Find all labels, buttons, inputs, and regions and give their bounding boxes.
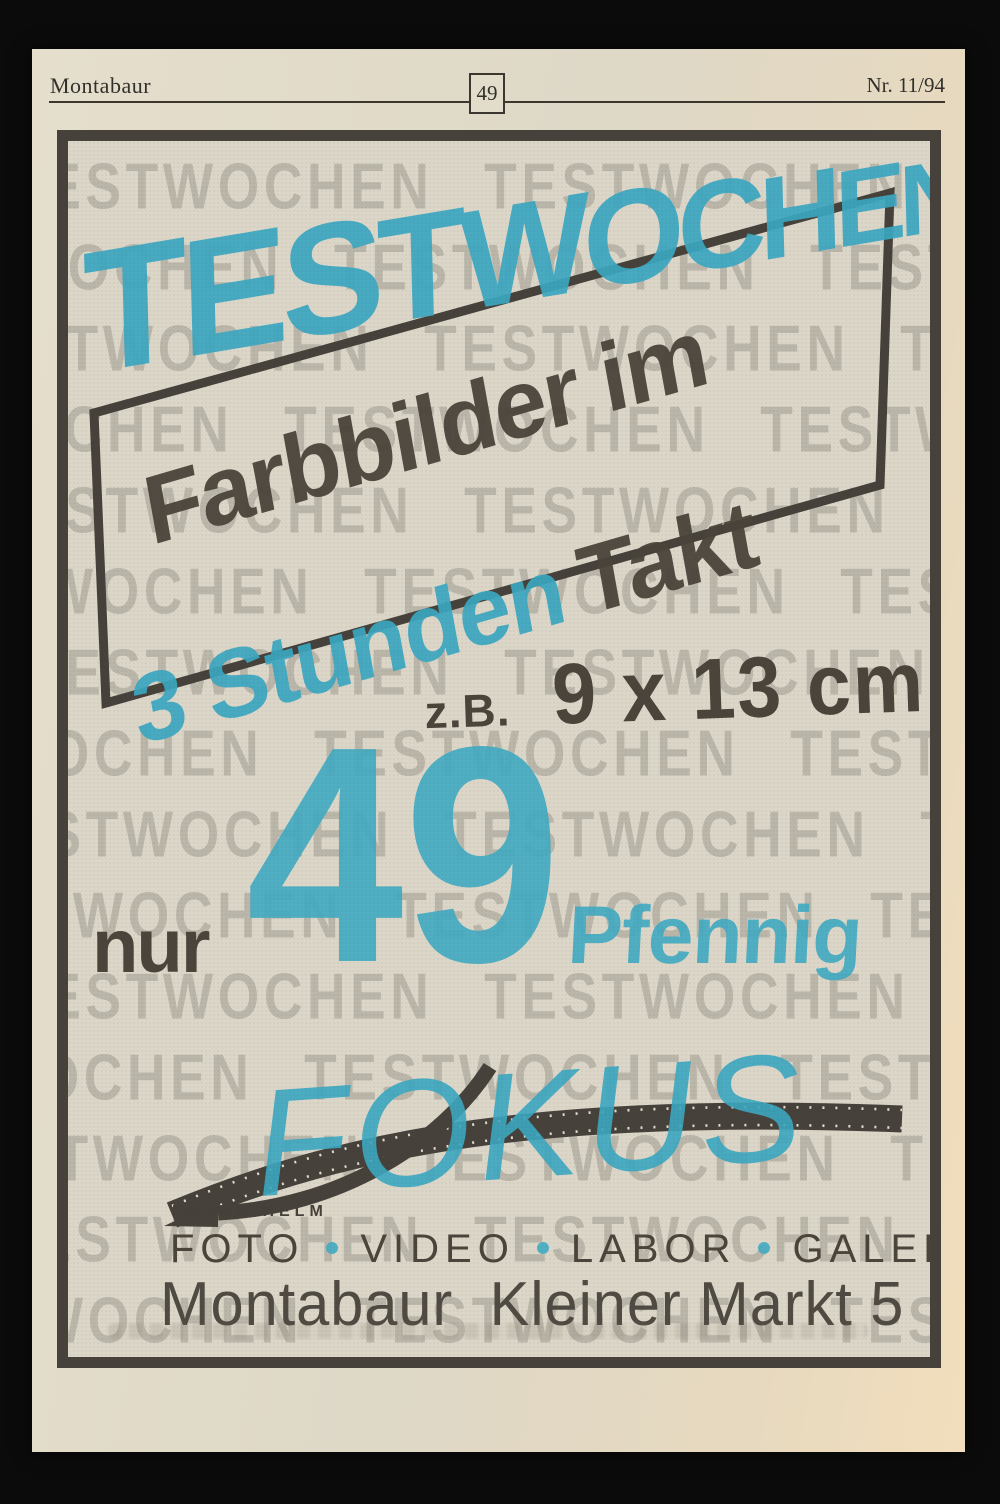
separator-dot-icon (537, 1242, 549, 1254)
page-number-box: 49 (469, 73, 505, 114)
issue-number: Nr. 11/94 (866, 73, 945, 98)
headline-letter: E (178, 201, 283, 383)
headline-letter: N (898, 142, 941, 254)
services-line: FOTO VIDEO LABOR GALERIE (170, 1227, 941, 1272)
ad-copy-layer: TESTWOCHEN Farbbilder im 3 StundenTakt z… (68, 141, 930, 1357)
scanned-newspaper-page: { "header": { "section": "Montabaur", "p… (0, 0, 1000, 1504)
owner-name: FRANK HELM (172, 1203, 328, 1221)
headline-letter: T (81, 211, 182, 401)
page-number: 49 (477, 81, 498, 106)
newspaper-sheet: Montabaur 49 Nr. 11/94 TESTWOCHEN TESTWO… (32, 49, 965, 1452)
example-size: 9 x 13 cm (550, 633, 926, 745)
print-bleedthrough-smudge (108, 1323, 868, 1339)
headline-letter: C (676, 156, 761, 295)
price-prefix: nur (92, 903, 208, 990)
headline-letter: W (458, 171, 585, 333)
headline-letter: T (375, 186, 461, 349)
fokus-logo-text: FOKUS (249, 1030, 812, 1220)
service-video: VIDEO (360, 1227, 514, 1272)
service-labor: LABOR (571, 1227, 737, 1272)
service-galerie: GALERIE (792, 1227, 941, 1272)
price-unit: Pfennig (566, 889, 865, 983)
separator-dot-icon (326, 1242, 338, 1254)
takt-text: Takt (570, 480, 764, 637)
headline-letter: O (581, 162, 679, 311)
headline-letter: H (758, 149, 837, 279)
section-title: Montabaur (50, 73, 151, 99)
fokus-advertisement: TESTWOCHEN TESTWOCHEN TESTWOCHEN TESTWOC… (57, 130, 941, 1368)
price-value: 49 (246, 701, 561, 1009)
headline-letter: S (280, 192, 380, 365)
page-header: Montabaur 49 Nr. 11/94 (32, 49, 965, 111)
service-foto: FOTO (170, 1227, 304, 1272)
separator-dot-icon (758, 1242, 770, 1254)
headline-letter: E (834, 146, 901, 266)
